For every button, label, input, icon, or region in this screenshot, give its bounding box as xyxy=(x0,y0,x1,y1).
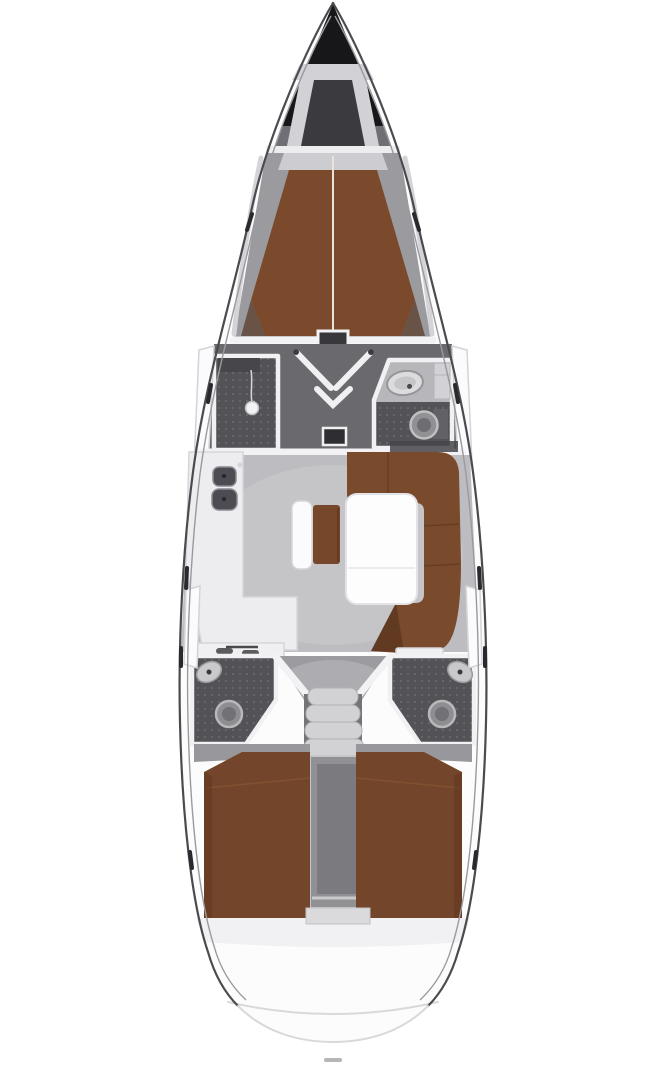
galley-faucet xyxy=(238,463,243,468)
engine-compartment-inner xyxy=(317,764,359,894)
locker-handle-1 xyxy=(216,648,233,654)
side-locker-starboard xyxy=(466,586,482,668)
door-hinge-port xyxy=(293,349,299,355)
stair-step-4 xyxy=(304,739,364,756)
galley-drain-1 xyxy=(222,474,226,478)
aft-head-starboard-toilet-bowl xyxy=(435,707,449,721)
shower-hose xyxy=(251,370,252,402)
yacht-floor-plan xyxy=(0,0,655,1080)
forward-head-cabinet xyxy=(434,363,450,399)
settee-back xyxy=(292,501,312,569)
forward-head-toilet-bowl xyxy=(417,418,431,432)
bow-bulkhead xyxy=(266,146,400,153)
settee-cushion xyxy=(313,505,340,564)
shower-head xyxy=(246,402,259,415)
aft-bed-port-shadow xyxy=(204,772,212,920)
galley-drain-2 xyxy=(222,497,226,501)
stair-step-2 xyxy=(306,705,360,722)
aft-cabin-port-bed xyxy=(204,752,310,920)
aft-cabin-starboard-bed xyxy=(356,752,462,920)
aft-bed-starboard-shadow xyxy=(454,772,462,920)
stair-step-3 xyxy=(305,722,362,739)
aft-head-port-toilet-bowl xyxy=(222,707,236,721)
yacht-floor-plan-page xyxy=(0,0,655,1080)
door-hinge-starboard xyxy=(368,349,374,355)
stair-step-1 xyxy=(308,688,358,705)
side-locker-port xyxy=(184,586,200,668)
salon-table xyxy=(346,494,417,604)
sofa-dark-strip xyxy=(390,441,458,452)
swim-platform-mark xyxy=(324,1058,342,1062)
shower-locker xyxy=(218,358,260,372)
aft-band-center-notch xyxy=(306,908,370,924)
mast-step-mat xyxy=(323,428,346,445)
